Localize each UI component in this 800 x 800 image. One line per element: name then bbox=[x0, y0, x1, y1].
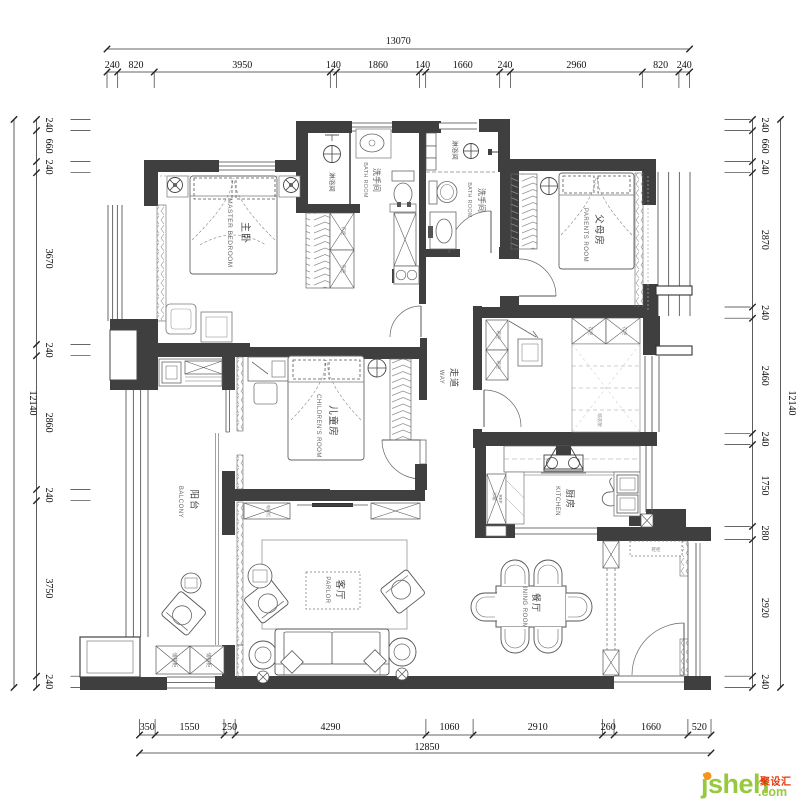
svg-text:洗手间: 洗手间 bbox=[372, 168, 382, 192]
svg-text:660: 660 bbox=[43, 139, 54, 154]
svg-text:2860: 2860 bbox=[43, 413, 54, 433]
svg-text:820: 820 bbox=[653, 60, 668, 71]
svg-text:240: 240 bbox=[759, 432, 770, 447]
svg-text:1750: 1750 bbox=[759, 476, 770, 496]
svg-text:衣柜: 衣柜 bbox=[340, 265, 347, 274]
svg-text:衣柜: 衣柜 bbox=[587, 327, 594, 336]
svg-text:PARLOR: PARLOR bbox=[324, 576, 330, 603]
svg-text:240: 240 bbox=[498, 60, 513, 71]
svg-text:KITCHEN: KITCHEN bbox=[554, 486, 560, 516]
svg-text:客厅: 客厅 bbox=[334, 579, 346, 600]
svg-text:REF: REF bbox=[498, 495, 503, 504]
svg-text:12140: 12140 bbox=[786, 391, 797, 416]
svg-text:鞋柜: 鞋柜 bbox=[495, 331, 502, 340]
svg-text:240: 240 bbox=[43, 343, 54, 358]
svg-text:走道: 走道 bbox=[449, 368, 460, 388]
svg-text:660: 660 bbox=[759, 139, 770, 154]
svg-text:冰箱: 冰箱 bbox=[491, 492, 498, 501]
svg-text:240: 240 bbox=[43, 118, 54, 133]
svg-text:1660: 1660 bbox=[453, 60, 473, 71]
svg-text:1550: 1550 bbox=[180, 722, 200, 733]
svg-text:2910: 2910 bbox=[528, 722, 548, 733]
svg-text:晾衣架: 晾衣架 bbox=[596, 413, 603, 427]
svg-text:820: 820 bbox=[129, 60, 144, 71]
svg-text:1860: 1860 bbox=[368, 60, 388, 71]
svg-text:2920: 2920 bbox=[759, 598, 770, 618]
svg-text:2870: 2870 bbox=[759, 230, 770, 250]
svg-text:储物柜: 储物柜 bbox=[205, 652, 212, 667]
svg-text:240: 240 bbox=[43, 488, 54, 503]
svg-text:BALCONY: BALCONY bbox=[177, 486, 183, 518]
svg-text:洗手间: 洗手间 bbox=[477, 188, 487, 212]
svg-text:.com: .com bbox=[758, 785, 787, 799]
svg-text:BATH ROOM: BATH ROOM bbox=[466, 182, 472, 218]
svg-text:DINING ROOM: DINING ROOM bbox=[521, 582, 527, 629]
svg-text:240: 240 bbox=[105, 60, 120, 71]
svg-text:电视柜: 电视柜 bbox=[266, 505, 272, 517]
svg-text:BATH ROOM: BATH ROOM bbox=[362, 162, 368, 198]
svg-text:240: 240 bbox=[43, 674, 54, 689]
svg-text:CHILDREN'S ROOM: CHILDREN'S ROOM bbox=[315, 394, 321, 458]
svg-text:250: 250 bbox=[222, 722, 237, 733]
svg-text:衣柜: 衣柜 bbox=[340, 227, 347, 236]
svg-text:储物柜: 储物柜 bbox=[171, 652, 178, 667]
svg-text:3670: 3670 bbox=[43, 249, 54, 269]
svg-text:阳台: 阳台 bbox=[188, 489, 200, 510]
svg-text:淋浴间: 淋浴间 bbox=[451, 140, 460, 160]
svg-text:餐厅: 餐厅 bbox=[531, 593, 542, 613]
svg-text:140: 140 bbox=[415, 60, 430, 71]
svg-text:240: 240 bbox=[759, 160, 770, 175]
svg-text:厨房: 厨房 bbox=[565, 489, 576, 509]
svg-text:260: 260 bbox=[601, 722, 616, 733]
svg-text:240: 240 bbox=[759, 674, 770, 689]
svg-text:4290: 4290 bbox=[321, 722, 341, 733]
svg-text:1660: 1660 bbox=[641, 722, 661, 733]
svg-text:520: 520 bbox=[692, 722, 707, 733]
svg-text:3950: 3950 bbox=[232, 60, 252, 71]
svg-text:240: 240 bbox=[677, 60, 692, 71]
svg-text:父母房: 父母房 bbox=[593, 214, 605, 246]
svg-text:MASTER BEDROOM: MASTER BEDROOM bbox=[226, 198, 233, 267]
svg-text:140: 140 bbox=[326, 60, 341, 71]
svg-text:PARENTS ROOM: PARENTS ROOM bbox=[582, 208, 588, 262]
svg-text:衣柜: 衣柜 bbox=[621, 327, 628, 336]
svg-text:鞋柜: 鞋柜 bbox=[495, 361, 502, 370]
svg-text:240: 240 bbox=[43, 160, 54, 175]
svg-text:主卧: 主卧 bbox=[239, 222, 252, 244]
svg-text:WAY: WAY bbox=[438, 370, 444, 385]
svg-text:鞋柜: 鞋柜 bbox=[652, 546, 661, 553]
svg-text:13070: 13070 bbox=[386, 36, 411, 47]
svg-text:1060: 1060 bbox=[440, 722, 460, 733]
svg-text:280: 280 bbox=[759, 526, 770, 541]
svg-text:2460: 2460 bbox=[759, 366, 770, 386]
svg-text:3750: 3750 bbox=[43, 578, 54, 598]
svg-text:240: 240 bbox=[759, 118, 770, 133]
svg-text:儿童房: 儿童房 bbox=[327, 405, 339, 437]
svg-text:2960: 2960 bbox=[566, 60, 586, 71]
svg-text:淋浴间: 淋浴间 bbox=[328, 172, 337, 192]
svg-text:240: 240 bbox=[759, 305, 770, 320]
svg-text:350: 350 bbox=[140, 722, 155, 733]
svg-text:12850: 12850 bbox=[415, 742, 440, 753]
